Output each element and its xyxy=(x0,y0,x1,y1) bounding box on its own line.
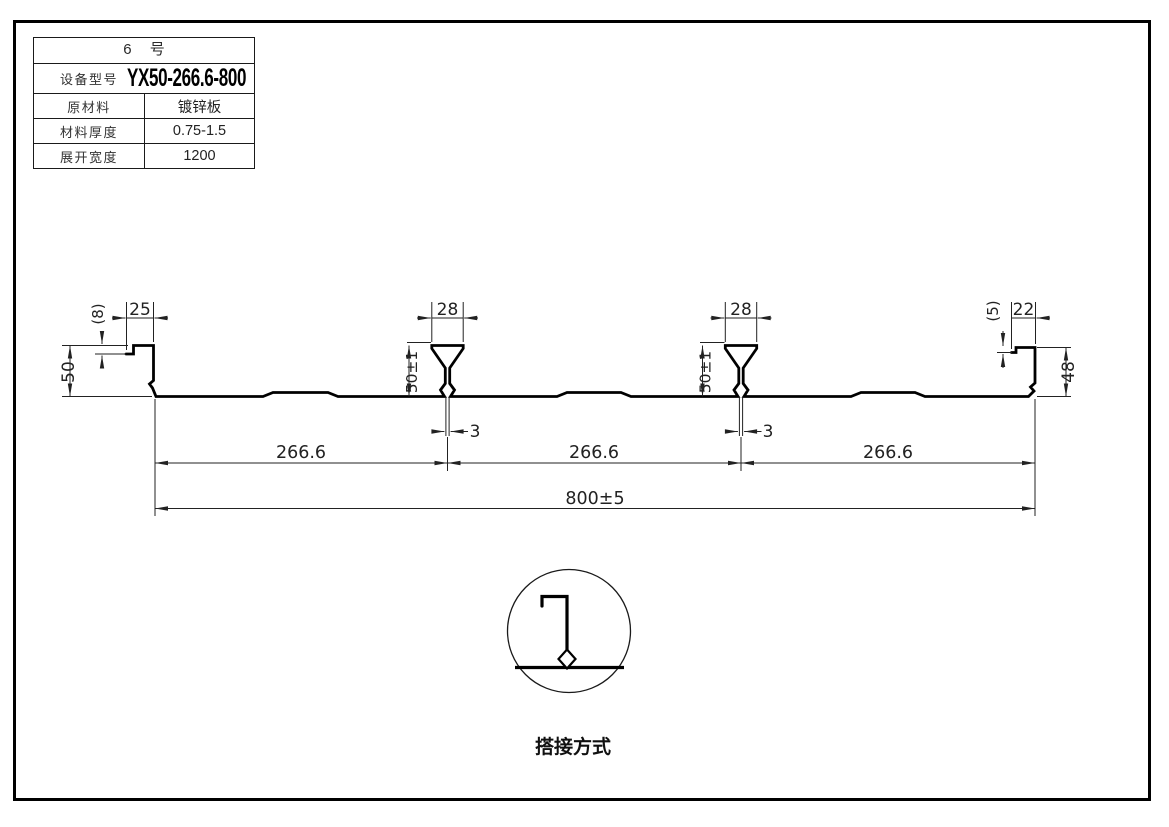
dim-rib1-height-label: 50±1 xyxy=(403,351,421,394)
dimension-lines xyxy=(62,302,1071,516)
dim-right-step-label: (5) xyxy=(984,300,1002,321)
spec-row-model: 设备型号 YX50-266.6-800 xyxy=(34,63,254,93)
dimension-labels: 50 (8) 25 28 50±1 3 28 50±1 3 (5) 22 48 … xyxy=(59,300,1079,509)
deck-profile-outline xyxy=(126,346,1035,397)
dim-rib2-height-label: 50±1 xyxy=(697,351,715,394)
spec-table-title-row: 6 号 xyxy=(34,38,254,63)
dim-rib1-gap-label: 3 xyxy=(470,422,481,442)
dim-right-height-label: 48 xyxy=(1059,361,1079,383)
drawing-number: 6 号 xyxy=(34,38,254,63)
spec-label-thickness: 材料厚度 xyxy=(34,119,145,143)
dim-rib2-gap-label: 3 xyxy=(763,422,774,442)
spec-value-material: 镀锌板 xyxy=(145,94,254,118)
dim-left-height-label: 50 xyxy=(59,361,79,383)
spec-label-coil-width: 展开宽度 xyxy=(34,144,145,168)
lap-joint-detail: 搭接方式 xyxy=(508,570,631,759)
detail-upper-sheet-hook xyxy=(542,597,567,651)
spec-value-thickness: 0.75-1.5 xyxy=(145,119,254,143)
dim-span1-label: 266.6 xyxy=(276,443,326,463)
drawing-sheet: 6 号 设备型号 YX50-266.6-800 原材料 镀锌板 材料厚度 0.7… xyxy=(0,0,1169,827)
spec-label-material: 原材料 xyxy=(34,94,145,118)
dim-right-lip-label: 22 xyxy=(1013,300,1035,320)
lap-detail-caption: 搭接方式 xyxy=(535,735,611,758)
dim-rib1-width-label: 28 xyxy=(437,300,459,320)
spec-value-coil-width: 1200 xyxy=(145,144,254,168)
dim-span2-label: 266.6 xyxy=(569,443,619,463)
spec-row-material: 原材料 镀锌板 xyxy=(34,93,254,118)
equipment-model-value: YX50-266.6-800 xyxy=(127,65,246,92)
detail-seam-knot xyxy=(559,650,576,669)
dim-rib2-width-label: 28 xyxy=(730,300,752,320)
dim-left-step-label: (8) xyxy=(89,303,107,324)
dim-span3-label: 266.6 xyxy=(863,443,913,463)
spec-table: 6 号 设备型号 YX50-266.6-800 原材料 镀锌板 材料厚度 0.7… xyxy=(33,37,255,169)
dim-left-lip-label: 25 xyxy=(129,300,151,320)
spec-row-thickness: 材料厚度 0.75-1.5 xyxy=(34,118,254,143)
dim-overall-width-label: 800±5 xyxy=(565,489,624,509)
spec-row-width: 展开宽度 1200 xyxy=(34,143,254,168)
detail-circle xyxy=(508,570,631,693)
